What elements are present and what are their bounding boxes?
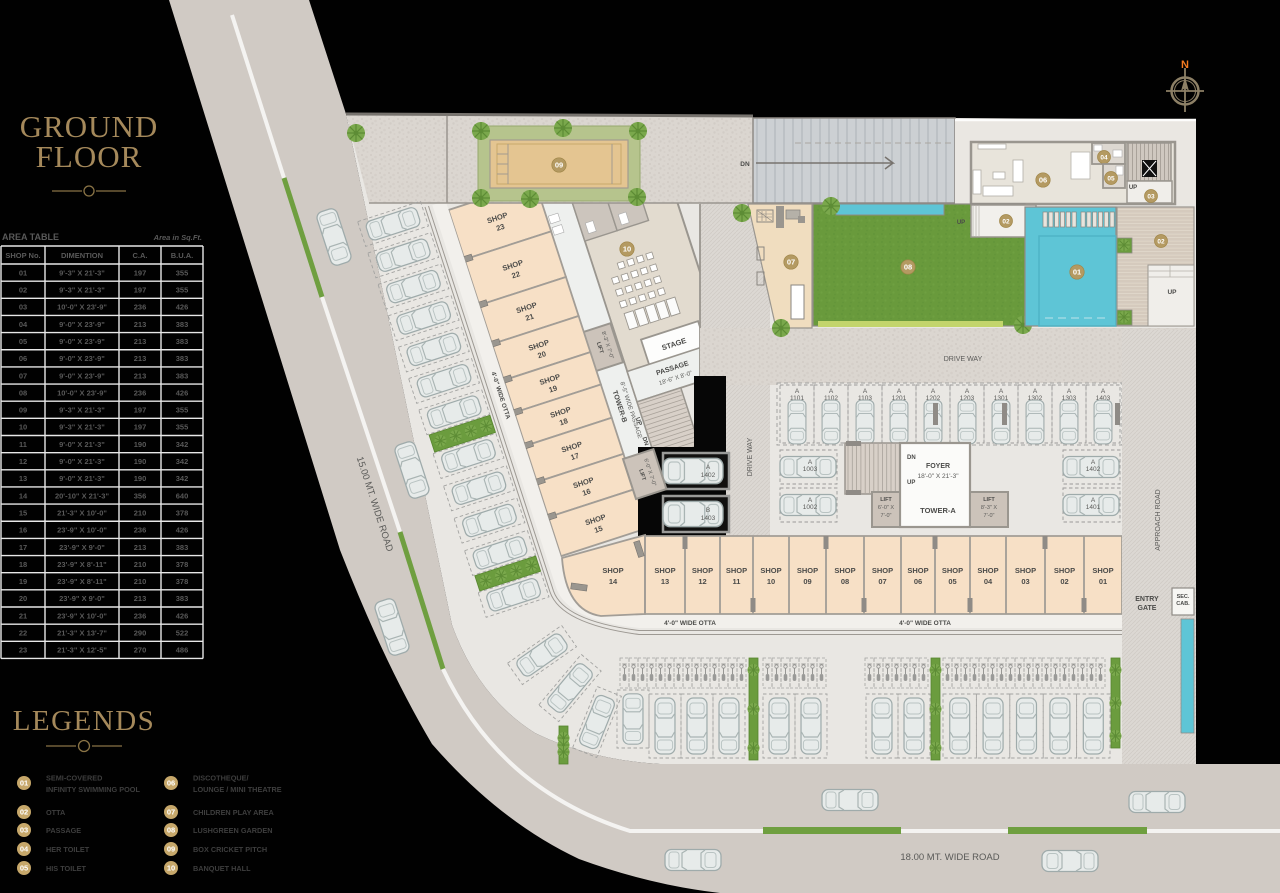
svg-text:DN: DN [740, 161, 750, 168]
svg-text:01: 01 [1073, 268, 1081, 277]
svg-text:9'-0" X 21'-3": 9'-0" X 21'-3" [59, 457, 105, 466]
svg-text:9'-0" X 23'-9": 9'-0" X 23'-9" [59, 354, 105, 363]
svg-text:21'-3" X 12'-5": 21'-3" X 12'-5" [57, 646, 107, 655]
svg-text:9'-3" X 21'-3": 9'-3" X 21'-3" [59, 406, 105, 415]
svg-text:06: 06 [1039, 176, 1047, 185]
svg-text:378: 378 [176, 508, 189, 517]
svg-text:213: 213 [134, 337, 147, 346]
svg-text:AREA TABLE: AREA TABLE [2, 232, 59, 242]
svg-text:SHOP: SHOP [692, 566, 713, 575]
svg-text:522: 522 [176, 629, 189, 638]
svg-text:03: 03 [1021, 577, 1029, 586]
svg-text:20: 20 [19, 594, 27, 603]
svg-text:SHOP No.: SHOP No. [5, 251, 40, 260]
svg-text:N: N [1181, 59, 1189, 71]
svg-text:486: 486 [176, 646, 189, 655]
svg-text:02: 02 [20, 808, 28, 817]
svg-text:18'-0" X 21'-3": 18'-0" X 21'-3" [917, 473, 959, 480]
svg-text:13: 13 [661, 577, 669, 586]
svg-text:05: 05 [19, 337, 27, 346]
svg-text:7'-0": 7'-0" [881, 513, 892, 519]
svg-text:4'-0" WIDE OTTA: 4'-0" WIDE OTTA [664, 620, 716, 627]
svg-text:23'-9" X 10'-0": 23'-9" X 10'-0" [57, 526, 107, 535]
svg-text:SHOP: SHOP [797, 566, 818, 575]
svg-text:19: 19 [19, 577, 27, 586]
svg-text:A: A [1091, 459, 1096, 466]
svg-text:383: 383 [176, 371, 189, 380]
svg-text:05: 05 [1107, 176, 1115, 183]
svg-text:378: 378 [176, 577, 189, 586]
svg-text:UP: UP [957, 220, 965, 226]
svg-text:23'-9" X 8'-11": 23'-9" X 8'-11" [57, 560, 107, 569]
svg-text:04: 04 [984, 577, 993, 586]
svg-text:210: 210 [134, 577, 147, 586]
svg-text:21'-3" X 13'-7": 21'-3" X 13'-7" [57, 629, 107, 638]
svg-text:190: 190 [134, 457, 147, 466]
svg-text:23'-9" X 9'-0": 23'-9" X 9'-0" [59, 594, 105, 603]
svg-text:UP: UP [1167, 289, 1177, 296]
svg-text:236: 236 [134, 303, 147, 312]
svg-text:10'-0" X 23'-9": 10'-0" X 23'-9" [57, 303, 107, 312]
svg-text:9'-0" X 23'-9": 9'-0" X 23'-9" [59, 371, 105, 380]
svg-text:9'-3" X 21'-3": 9'-3" X 21'-3" [59, 423, 105, 432]
svg-text:09: 09 [167, 845, 175, 854]
svg-text:01: 01 [1099, 577, 1107, 586]
svg-text:197: 197 [134, 406, 147, 415]
svg-text:B: B [706, 507, 710, 514]
svg-text:7'-0": 7'-0" [984, 513, 995, 519]
svg-text:LIFT: LIFT [880, 497, 892, 503]
svg-text:08: 08 [167, 826, 175, 835]
svg-text:640: 640 [176, 491, 189, 500]
svg-text:08: 08 [19, 388, 27, 397]
svg-text:SHOP: SHOP [942, 566, 963, 575]
svg-text:09: 09 [19, 406, 27, 415]
svg-text:9'-0" X 23'-9": 9'-0" X 23'-9" [59, 337, 105, 346]
svg-text:09: 09 [803, 577, 811, 586]
svg-text:BANQUET HALL: BANQUET HALL [193, 864, 251, 873]
svg-text:CAB.: CAB. [1176, 601, 1190, 607]
svg-text:02: 02 [1002, 219, 1010, 226]
svg-text:PASSAGE: PASSAGE [46, 826, 81, 835]
svg-text:UP: UP [907, 480, 915, 486]
svg-text:LIFT: LIFT [983, 497, 995, 503]
svg-text:1401: 1401 [1086, 504, 1101, 511]
svg-text:APPROACH ROAD: APPROACH ROAD [1155, 489, 1162, 550]
svg-text:190: 190 [134, 474, 147, 483]
svg-text:SHOP: SHOP [654, 566, 675, 575]
svg-text:A: A [808, 497, 813, 504]
svg-text:A: A [795, 388, 800, 395]
svg-text:355: 355 [176, 423, 189, 432]
svg-text:15: 15 [19, 508, 27, 517]
svg-text:BOX CRICKET PITCH: BOX CRICKET PITCH [193, 845, 267, 854]
svg-text:9'-0" X 23'-9": 9'-0" X 23'-9" [59, 320, 105, 329]
svg-text:213: 213 [134, 354, 147, 363]
svg-text:A: A [999, 388, 1004, 395]
svg-text:236: 236 [134, 388, 147, 397]
svg-text:05: 05 [20, 864, 28, 873]
svg-text:07: 07 [878, 577, 886, 586]
svg-text:SHOP: SHOP [834, 566, 855, 575]
svg-text:UP: UP [1129, 185, 1137, 191]
svg-text:23'-9" X 10'-0": 23'-9" X 10'-0" [57, 611, 107, 620]
svg-text:210: 210 [134, 508, 147, 517]
svg-text:213: 213 [134, 594, 147, 603]
svg-text:383: 383 [176, 543, 189, 552]
svg-text:426: 426 [176, 388, 189, 397]
svg-text:10'-0" X 23'-9": 10'-0" X 23'-9" [57, 388, 107, 397]
svg-text:SHOP: SHOP [602, 566, 623, 575]
svg-text:FOYER: FOYER [926, 463, 950, 470]
svg-text:22: 22 [19, 629, 27, 638]
svg-text:11: 11 [19, 440, 27, 449]
svg-text:11: 11 [733, 577, 741, 586]
svg-text:SHOP: SHOP [872, 566, 893, 575]
svg-text:08: 08 [904, 263, 912, 272]
svg-text:07: 07 [19, 371, 27, 380]
svg-text:236: 236 [134, 526, 147, 535]
svg-text:20'-10" X 21'-3": 20'-10" X 21'-3" [55, 491, 109, 500]
svg-text:LEGENDS: LEGENDS [13, 705, 156, 737]
svg-text:FLOOR: FLOOR [36, 139, 143, 174]
svg-text:OTTA: OTTA [46, 808, 66, 817]
svg-text:378: 378 [176, 560, 189, 569]
svg-text:210: 210 [134, 560, 147, 569]
svg-text:10: 10 [767, 577, 775, 586]
svg-text:342: 342 [176, 457, 189, 466]
svg-text:06: 06 [19, 354, 27, 363]
svg-text:04: 04 [1100, 155, 1108, 162]
svg-text:DN: DN [907, 455, 916, 461]
svg-text:426: 426 [176, 526, 189, 535]
svg-text:04: 04 [20, 845, 29, 854]
svg-text:SHOP: SHOP [907, 566, 928, 575]
svg-text:SHOP: SHOP [760, 566, 781, 575]
svg-text:197: 197 [134, 423, 147, 432]
svg-text:A: A [965, 388, 970, 395]
svg-text:9'-3" X 21'-3": 9'-3" X 21'-3" [59, 268, 105, 277]
svg-text:383: 383 [176, 594, 189, 603]
svg-text:CHILDREN PLAY AREA: CHILDREN PLAY AREA [193, 808, 275, 817]
svg-text:17: 17 [19, 543, 27, 552]
svg-text:ENTRY: ENTRY [1135, 596, 1159, 603]
svg-text:A: A [1067, 388, 1072, 395]
svg-text:190: 190 [134, 440, 147, 449]
svg-text:1402: 1402 [701, 472, 716, 479]
svg-text:1402: 1402 [1086, 466, 1101, 473]
svg-text:1003: 1003 [803, 466, 818, 473]
svg-text:SHOP: SHOP [1092, 566, 1113, 575]
svg-text:18: 18 [19, 560, 27, 569]
svg-text:290: 290 [134, 629, 147, 638]
svg-text:426: 426 [176, 303, 189, 312]
svg-text:13: 13 [19, 474, 27, 483]
svg-text:8'-3" X: 8'-3" X [981, 505, 997, 511]
svg-text:02: 02 [1157, 239, 1165, 246]
svg-text:SHOP: SHOP [726, 566, 747, 575]
svg-text:12: 12 [19, 457, 27, 466]
svg-text:1002: 1002 [803, 504, 818, 511]
svg-text:16: 16 [19, 526, 27, 535]
svg-text:SHOP: SHOP [1054, 566, 1075, 575]
svg-text:SHOP: SHOP [977, 566, 998, 575]
svg-text:SEC.: SEC. [1177, 594, 1190, 600]
svg-text:07: 07 [167, 808, 175, 817]
svg-text:08: 08 [841, 577, 849, 586]
svg-text:SHOP: SHOP [1015, 566, 1036, 575]
svg-text:DRIVE WAY: DRIVE WAY [944, 356, 983, 363]
svg-text:A: A [897, 388, 902, 395]
svg-text:9'-3" X 21'-3": 9'-3" X 21'-3" [59, 286, 105, 295]
svg-text:A: A [1091, 497, 1096, 504]
svg-text:07: 07 [787, 258, 795, 267]
svg-text:02: 02 [1060, 577, 1068, 586]
svg-text:03: 03 [1147, 194, 1155, 201]
svg-text:23'-9" X 9'-0": 23'-9" X 9'-0" [59, 543, 105, 552]
svg-text:HIS TOILET: HIS TOILET [46, 864, 87, 873]
svg-text:LOUNGE / MINI THEATRE: LOUNGE / MINI THEATRE [193, 785, 282, 794]
svg-text:01: 01 [20, 779, 28, 788]
svg-text:21'-3" X 10'-0": 21'-3" X 10'-0" [57, 508, 107, 517]
svg-text:Area in Sq.Ft.: Area in Sq.Ft. [153, 233, 202, 242]
svg-text:6'-0" X: 6'-0" X [878, 505, 894, 511]
svg-text:383: 383 [176, 354, 189, 363]
svg-text:213: 213 [134, 543, 147, 552]
svg-text:355: 355 [176, 286, 189, 295]
svg-text:HER TOILET: HER TOILET [46, 845, 90, 854]
svg-text:C.A.: C.A. [133, 251, 148, 260]
svg-text:03: 03 [19, 303, 27, 312]
svg-text:18.00 MT. WIDE ROAD: 18.00 MT. WIDE ROAD [900, 852, 999, 863]
svg-text:10: 10 [19, 423, 27, 432]
svg-text:02: 02 [19, 286, 27, 295]
svg-text:355: 355 [176, 406, 189, 415]
svg-text:213: 213 [134, 371, 147, 380]
svg-text:10: 10 [167, 864, 175, 873]
svg-text:236: 236 [134, 611, 147, 620]
svg-text:383: 383 [176, 337, 189, 346]
svg-text:INFINITY SWIMMING POOL: INFINITY SWIMMING POOL [46, 785, 140, 794]
svg-text:04: 04 [19, 320, 28, 329]
svg-text:GATE: GATE [1138, 605, 1157, 612]
svg-text:03: 03 [20, 826, 28, 835]
svg-text:09: 09 [555, 161, 563, 170]
svg-text:356: 356 [134, 491, 147, 500]
svg-text:12: 12 [698, 577, 706, 586]
svg-text:9'-0" X 21'-3": 9'-0" X 21'-3" [59, 474, 105, 483]
svg-text:355: 355 [176, 268, 189, 277]
svg-text:23: 23 [19, 646, 27, 655]
svg-text:A: A [931, 388, 936, 395]
svg-text:A: A [863, 388, 868, 395]
svg-text:DIMENTION: DIMENTION [61, 251, 103, 260]
svg-text:23'-9" X 8'-11": 23'-9" X 8'-11" [57, 577, 107, 586]
svg-text:14: 14 [19, 491, 28, 500]
svg-text:21: 21 [19, 611, 27, 620]
svg-text:A: A [1033, 388, 1038, 395]
svg-text:A: A [1101, 388, 1106, 395]
svg-text:197: 197 [134, 268, 147, 277]
svg-text:B.U.A.: B.U.A. [171, 251, 194, 260]
svg-text:1403: 1403 [701, 515, 716, 522]
svg-text:A: A [829, 388, 834, 395]
svg-text:342: 342 [176, 474, 189, 483]
svg-text:06: 06 [914, 577, 922, 586]
svg-text:SEMI-COVERED: SEMI-COVERED [46, 774, 102, 783]
svg-text:TOWER-A: TOWER-A [920, 506, 956, 515]
svg-text:06: 06 [167, 779, 175, 788]
svg-text:A: A [808, 459, 813, 466]
svg-text:A: A [706, 464, 711, 471]
svg-text:4'-0" WIDE OTTA: 4'-0" WIDE OTTA [899, 620, 951, 627]
svg-text:426: 426 [176, 611, 189, 620]
svg-text:213: 213 [134, 320, 147, 329]
svg-text:270: 270 [134, 646, 147, 655]
svg-text:9'-0" X 21'-3": 9'-0" X 21'-3" [59, 440, 105, 449]
svg-text:01: 01 [19, 268, 27, 277]
svg-text:383: 383 [176, 320, 189, 329]
svg-text:05: 05 [948, 577, 956, 586]
svg-text:14: 14 [609, 577, 618, 586]
svg-text:342: 342 [176, 440, 189, 449]
svg-text:DISCOTHEQUE/: DISCOTHEQUE/ [193, 774, 249, 783]
svg-text:197: 197 [134, 286, 147, 295]
svg-text:LUSHGREEN GARDEN: LUSHGREEN GARDEN [193, 826, 272, 835]
svg-text:10: 10 [623, 245, 631, 254]
svg-text:DRIVE WAY: DRIVE WAY [747, 437, 754, 476]
